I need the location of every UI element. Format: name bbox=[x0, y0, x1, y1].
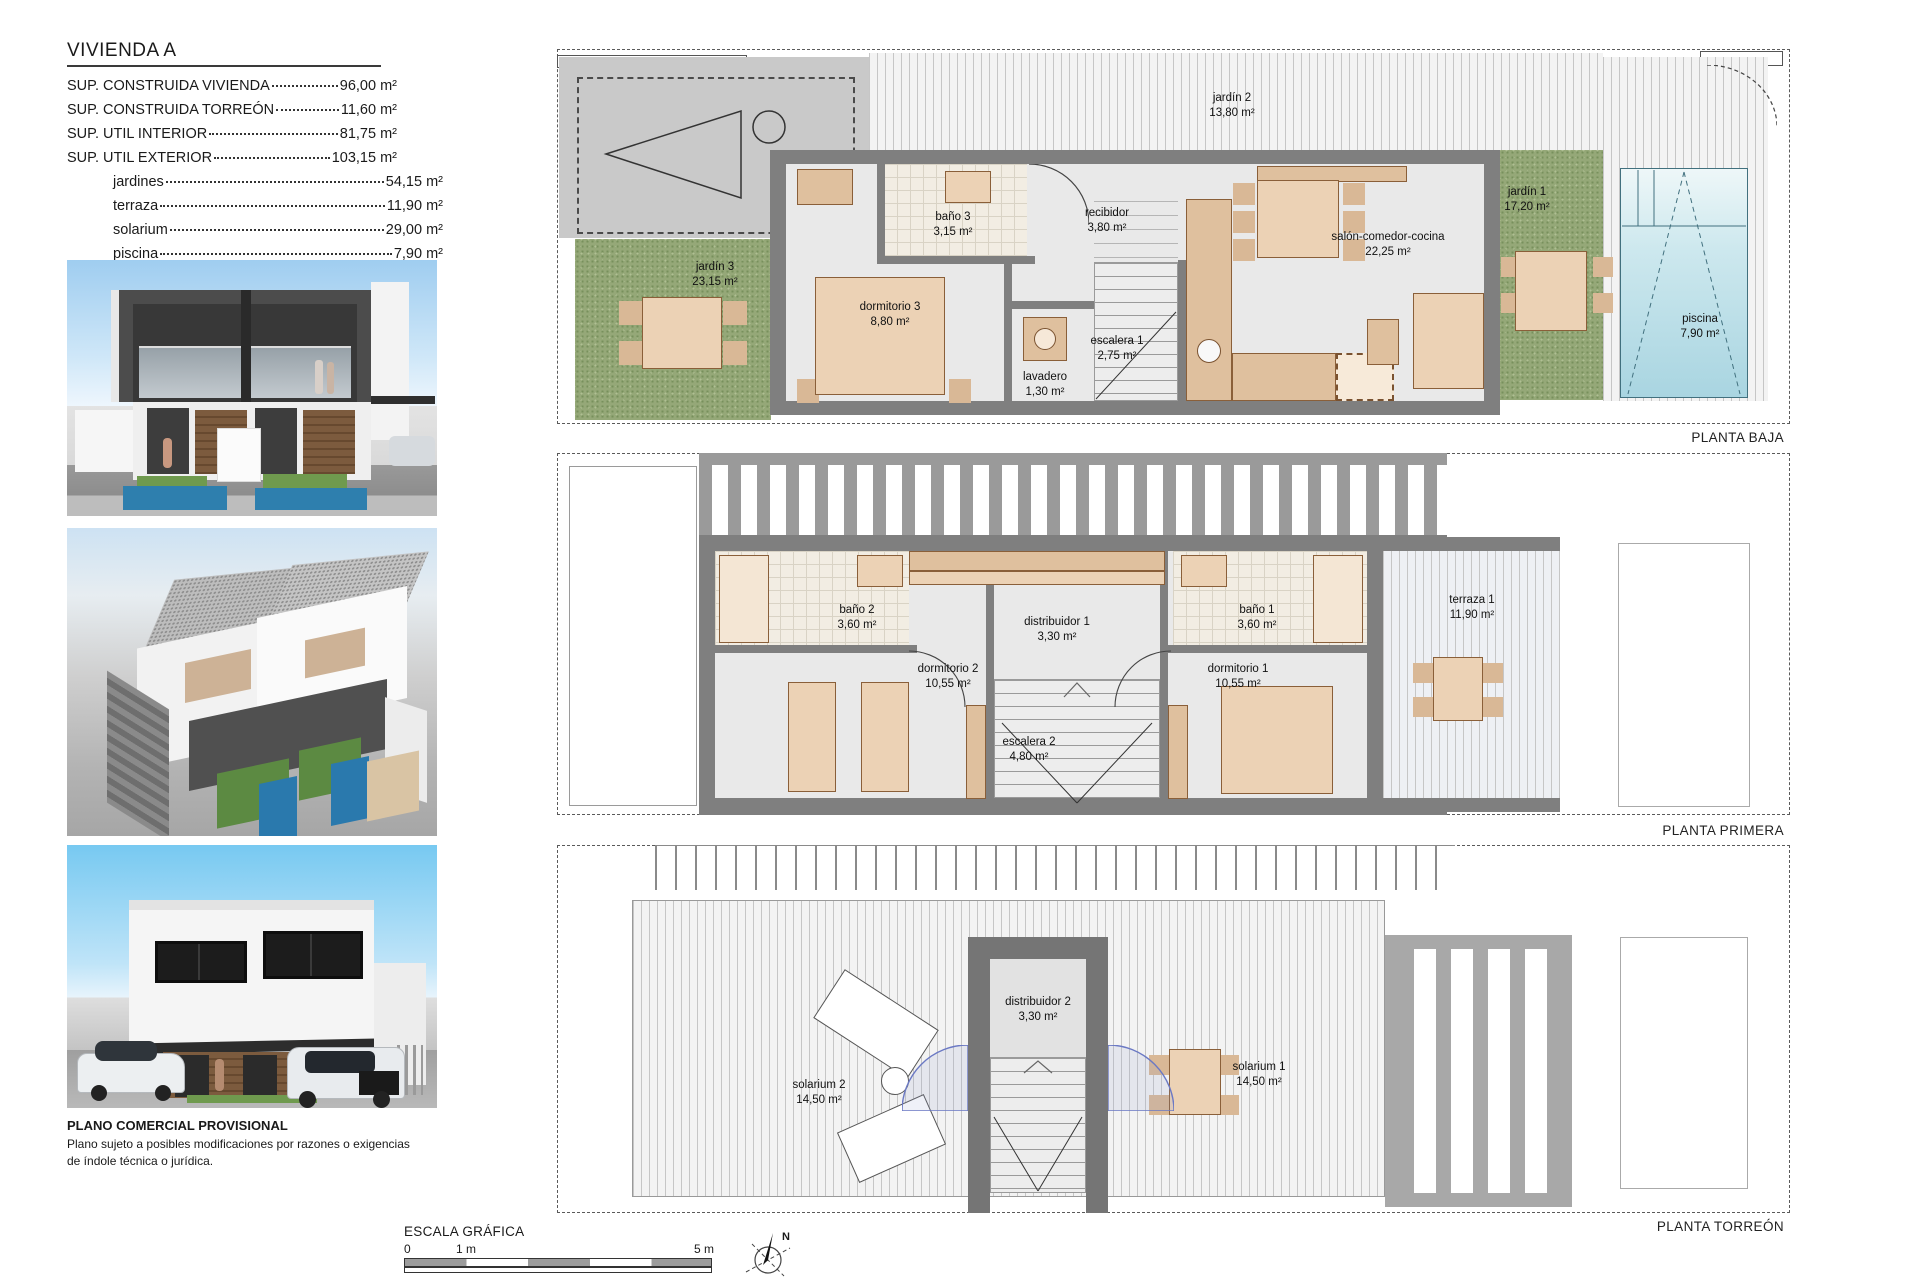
surface-row: SUP. CONSTRUIDA TORREÓN11,60 m² bbox=[67, 98, 397, 122]
scale-tick-1m: 1 m bbox=[456, 1242, 476, 1256]
plan-caption-planta-primera: PLANTA PRIMERA bbox=[1662, 823, 1784, 838]
coffee-table bbox=[1367, 319, 1399, 365]
surface-row: SUP. UTIL EXTERIOR103,15 m² bbox=[67, 146, 397, 170]
room-label-solarium-2: solarium 214,50 m² bbox=[792, 1078, 845, 1108]
floor-plan-planta-baja: jardín 213,80 m² jardín 323,15 m² baño 3… bbox=[557, 49, 1790, 424]
scale-bar-segments bbox=[404, 1258, 712, 1267]
render-front-elevation bbox=[67, 260, 437, 516]
render-aerial-view bbox=[67, 528, 437, 836]
room-label-solarium-1: solarium 114,50 m² bbox=[1232, 1060, 1285, 1090]
room-label-jardin-2: jardín 213,80 m² bbox=[1209, 91, 1254, 121]
pergola-frame bbox=[1385, 935, 1572, 1207]
surface-subrow: solarium29,00 m² bbox=[113, 218, 443, 242]
disclaimer: PLANO COMERCIAL PROVISIONAL Plano sujeto… bbox=[67, 1118, 419, 1170]
door-arc-blue bbox=[1108, 1045, 1174, 1111]
pergola-thin-slats bbox=[655, 845, 1455, 890]
shower bbox=[719, 555, 769, 643]
surface-sublist: jardines54,15 m² terraza11,90 m² solariu… bbox=[113, 170, 325, 266]
room-label-bano-3: baño 33,15 m² bbox=[934, 210, 973, 240]
kitchen-sink bbox=[1197, 339, 1221, 363]
room-label-bano-1: baño 13,60 m² bbox=[1238, 603, 1277, 633]
title-underline bbox=[67, 65, 381, 67]
disclaimer-title: PLANO COMERCIAL PROVISIONAL bbox=[67, 1118, 419, 1133]
title-block: VIVIENDA A SUP. CONSTRUIDA VIVIENDA96,00… bbox=[67, 40, 399, 266]
room-label-recibidor: recibidor3,80 m² bbox=[1085, 206, 1129, 236]
sofa bbox=[1413, 293, 1484, 389]
render-rear-elevation bbox=[67, 845, 437, 1108]
surface-row: SUP. CONSTRUIDA VIVIENDA96,00 m² bbox=[67, 74, 397, 98]
bed-single bbox=[788, 682, 836, 792]
garden-table bbox=[642, 297, 722, 369]
sink bbox=[945, 171, 991, 203]
chairs bbox=[1413, 663, 1433, 683]
chairs bbox=[1233, 183, 1255, 205]
window bbox=[155, 941, 247, 983]
pergola-beam bbox=[699, 453, 1447, 465]
scale-bar-title: ESCALA GRÁFICA bbox=[404, 1224, 724, 1239]
bed-single bbox=[861, 682, 909, 792]
neighbor-plot bbox=[569, 466, 697, 806]
wardrobe bbox=[797, 169, 853, 205]
room-label-dormitorio-2: dormitorio 210,55 m² bbox=[918, 662, 979, 692]
room-label-dormitorio-3: dormitorio 38,80 m² bbox=[860, 300, 921, 330]
terrace-table bbox=[1433, 657, 1483, 721]
room-label-distribuidor-2: distribuidor 23,30 m² bbox=[1005, 995, 1071, 1025]
chairs bbox=[619, 301, 643, 325]
room-label-distribuidor-1: distribuidor 13,30 m² bbox=[1024, 615, 1090, 645]
door-arc bbox=[1113, 649, 1171, 707]
bed-double bbox=[815, 277, 945, 395]
wardrobe bbox=[909, 571, 1165, 585]
kitchen-counter bbox=[1186, 199, 1232, 401]
garden-table bbox=[1515, 251, 1587, 331]
bed-double bbox=[1221, 686, 1333, 794]
door-arc bbox=[1027, 164, 1089, 226]
room-label-salon: salón-comedor-cocina22,25 m² bbox=[1331, 230, 1444, 260]
kitchen-counter bbox=[1232, 353, 1336, 401]
floor-plan-planta-torreon: distribuidor 23,30 m² solarium 214,50 m²… bbox=[557, 845, 1790, 1213]
plan-caption-planta-torreon: PLANTA TORREÓN bbox=[1657, 1219, 1784, 1234]
room-label-jardin-3: jardín 323,15 m² bbox=[692, 260, 737, 290]
surface-row: SUP. UTIL INTERIOR81,75 m² bbox=[67, 122, 397, 146]
pool-front bbox=[123, 486, 227, 510]
pool bbox=[331, 756, 369, 826]
wardrobe bbox=[1168, 705, 1188, 799]
scale-bar: ESCALA GRÁFICA 0 1 m 5 m bbox=[404, 1224, 724, 1276]
floor-plan-planta-primera: distribuidor 13,30 m² escalera 24,80 m² … bbox=[557, 453, 1790, 815]
room-label-bano-2: baño 23,60 m² bbox=[838, 603, 877, 633]
scale-bar-base bbox=[404, 1267, 712, 1273]
dwelling-title: VIVIENDA A bbox=[67, 40, 399, 62]
sink bbox=[1181, 555, 1227, 587]
room-label-terraza-1: terraza 111,90 m² bbox=[1449, 593, 1494, 623]
room-label-piscina: piscina7,90 m² bbox=[1681, 312, 1720, 342]
scale-tick-0: 0 bbox=[404, 1242, 411, 1256]
room-label-dormitorio-1: dormitorio 110,55 m² bbox=[1208, 662, 1269, 692]
plan-caption-planta-baja: PLANTA BAJA bbox=[1691, 430, 1784, 445]
sink bbox=[857, 555, 903, 587]
pergola-slats bbox=[699, 465, 1447, 535]
wardrobe bbox=[909, 551, 1165, 571]
room-label-lavadero: lavadero1,30 m² bbox=[1023, 370, 1067, 400]
north-label: N bbox=[782, 1231, 790, 1243]
surface-subrow: jardines54,15 m² bbox=[113, 170, 443, 194]
wardrobe bbox=[966, 705, 986, 799]
room-label-escalera-2: escalera 24,80 m² bbox=[1002, 735, 1055, 765]
gate-arc bbox=[1703, 65, 1777, 127]
disclaimer-body: Plano sujeto a posibles modificaciones p… bbox=[67, 1136, 419, 1170]
neighbor-plot bbox=[1620, 937, 1748, 1189]
window bbox=[263, 931, 363, 979]
pool-front bbox=[255, 488, 367, 510]
dining-table bbox=[1257, 180, 1339, 258]
room-label-jardin-1: jardín 117,20 m² bbox=[1504, 185, 1549, 215]
plan-sheet: VIVIENDA A SUP. CONSTRUIDA VIVIENDA96,00… bbox=[0, 0, 1920, 1280]
door-arc-blue bbox=[902, 1045, 968, 1111]
scale-tick-5m: 5 m bbox=[694, 1242, 714, 1256]
neighbor-plot bbox=[1618, 543, 1750, 807]
pool bbox=[259, 776, 297, 836]
room-label-escalera-1: escalera 12,75 m² bbox=[1090, 334, 1143, 364]
shower bbox=[1313, 555, 1363, 643]
terrace-table bbox=[1169, 1049, 1221, 1115]
surface-subrow: terraza11,90 m² bbox=[113, 194, 443, 218]
